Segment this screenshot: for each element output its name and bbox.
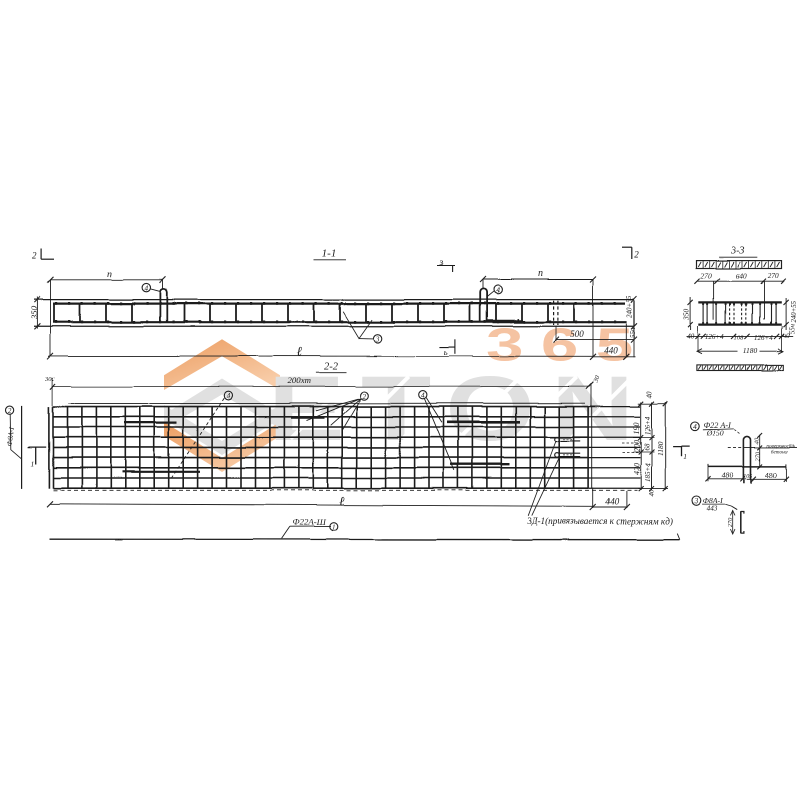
svg-text:4: 4 [496,285,500,294]
svg-text:ь: ь [444,347,448,357]
svg-text:185+4: 185+4 [644,463,652,482]
svg-text:Ф22А-Ш: Ф22А-Ш [293,517,327,527]
svg-text:4: 4 [227,392,231,401]
svg-text:2: 2 [362,391,366,400]
svg-text:40: 40 [687,333,695,341]
svg-text:105: 105 [744,474,753,480]
svg-text:2: 2 [8,407,12,415]
svg-text:55ч: 55ч [629,327,637,338]
svg-text:440: 440 [604,346,618,356]
svg-text:40: 40 [648,489,656,497]
svg-text:1-1: 1-1 [322,248,337,260]
svg-text:350: 350 [682,309,691,322]
svg-text:40: 40 [646,391,654,399]
svg-text:п: п [107,269,112,280]
svg-text:3: 3 [694,496,699,505]
svg-text:200: 200 [633,440,642,452]
svg-text:480: 480 [765,470,777,479]
svg-text:270: 270 [700,272,711,281]
svg-text:4: 4 [693,423,697,432]
svg-text:55ч: 55ч [789,324,796,334]
svg-text:4: 4 [144,283,148,292]
svg-text:1: 1 [31,459,35,468]
svg-text:443: 443 [707,505,718,513]
svg-text:240+55: 240+55 [626,295,634,318]
svg-text:270: 270 [727,517,734,527]
svg-text:3Д-1(привязывается к стержням: 3Д-1(привязывается к стержням кд) [526,516,673,526]
svg-text:ETON: ETON [268,358,650,460]
svg-text:200хm: 200хm [287,376,310,386]
svg-text:126+4: 126+4 [705,333,724,341]
svg-text:3: 3 [375,334,380,343]
svg-text:240+55: 240+55 [791,300,798,322]
svg-text:126+4: 126+4 [644,416,652,435]
svg-text:350: 350 [29,306,39,321]
svg-text:68: 68 [643,443,651,451]
svg-text:1180: 1180 [743,346,758,355]
svg-text:2: 2 [635,250,640,260]
svg-text:3-3: 3-3 [730,245,745,256]
svg-text:40: 40 [754,437,761,444]
svg-text:ℓ: ℓ [339,494,345,509]
svg-text:ℓ: ℓ [297,344,303,359]
svg-text:480: 480 [722,470,734,479]
svg-text:1: 1 [683,452,687,461]
svg-text:126+4: 126+4 [754,334,773,342]
svg-text:з: з [439,258,444,268]
svg-text:4: 4 [421,390,425,399]
svg-text:Ф8А-I: Ф8А-I [703,496,724,505]
svg-text:640: 640 [736,272,747,281]
svg-text:п: п [538,269,543,280]
svg-text:190: 190 [632,423,641,435]
svg-text:440: 440 [605,496,619,506]
svg-text:30с: 30с [45,375,56,382]
svg-text:270: 270 [768,271,779,280]
svg-text:ч0: ч0 [783,332,790,340]
svg-text:420: 420 [632,463,641,475]
svg-text:270: 270 [755,451,762,461]
svg-text:Ø150: Ø150 [706,429,724,438]
svg-text:бетона: бетона [771,448,788,455]
svg-text:2: 2 [33,251,38,261]
svg-text:500: 500 [570,329,584,339]
svg-text:1: 1 [332,523,336,531]
svg-text:1180: 1180 [656,441,665,456]
svg-text:2-2: 2-2 [324,361,339,372]
svg-text:108: 108 [734,334,745,341]
